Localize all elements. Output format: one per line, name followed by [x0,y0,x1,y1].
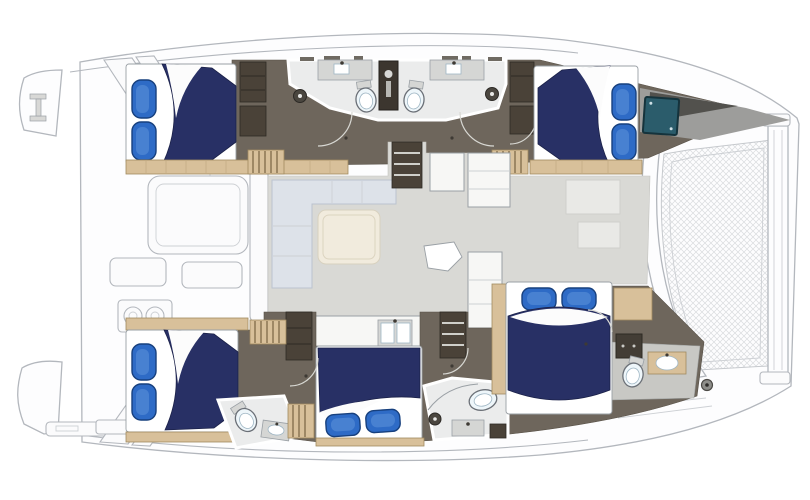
vent-slot [488,57,502,61]
pillow-highlight [136,349,149,375]
pillow-highlight [331,417,356,432]
pillow-highlight [371,413,396,428]
door-stop [304,374,307,377]
shower-head-icon [486,88,499,101]
cabin-shelf [492,284,506,394]
wardrobe [510,106,534,134]
cabinet-body [616,334,642,358]
pillow-highlight [136,85,149,113]
cabin-shelf [126,318,248,330]
port-aft-cabin [126,64,236,164]
bed-pillow [562,288,596,310]
pillow-highlight [567,292,591,305]
bowsprit-beam [768,126,788,374]
faucet [452,61,456,65]
helm-seat-ghost [578,222,620,248]
walkway-planks [126,160,348,174]
bed-pillow [132,80,156,118]
bed-pillow [132,344,156,380]
pillow-highlight [136,127,149,155]
anchor-fitting-pin [705,383,709,387]
pillow-highlight [527,292,551,305]
beam-cap-bottom [760,372,790,384]
cleat-bar-top [30,94,46,99]
sink-basin [656,356,678,370]
vent-slot [442,56,458,60]
wardrobe [286,312,312,360]
sink-basin [446,64,461,74]
sink-icon [648,352,686,374]
cabinet [616,334,642,358]
pillow-highlight [136,389,149,415]
wardrobe-body [286,312,312,360]
wardrobe [240,106,266,136]
step-treads [288,404,314,438]
bed-pillow [132,384,156,420]
sink-icon [261,420,291,441]
hull-steps [250,320,286,344]
vent-slot [300,57,314,61]
sink-basin [381,323,394,343]
bed-pillow [132,122,156,160]
vent-slot [354,56,363,60]
shower-rose-center [433,417,437,421]
bathroom-locker [490,424,506,438]
anchor-fitting [702,380,713,391]
cabinet-knob [633,345,636,348]
cockpit-table [148,176,248,254]
cabin-shelf [614,288,652,320]
door-stop [584,342,587,345]
bed-pillow [522,288,556,310]
faucet [340,61,344,65]
seat-hatch-lid [643,97,679,135]
cleat-post [36,99,41,116]
door-stop [450,136,453,139]
mixer-bar-icon [386,81,391,97]
coffee-table [318,210,380,264]
pillow-highlight [616,129,629,155]
galley [308,316,438,350]
shower-rose-center [490,92,494,96]
sink-basin [334,64,349,74]
faucet [665,353,668,356]
sink-basin [397,323,410,343]
walkway-planks [530,160,642,174]
mixer-icon [385,70,393,78]
faucet [466,422,470,426]
hull-steps [248,150,284,174]
vent-slot [462,56,471,60]
faucet [393,319,397,323]
door-stop [450,364,453,367]
port-forward-cabin [534,66,638,166]
floor-plan-canvas [0,0,810,500]
companionway-stairs-starboard [440,312,466,358]
bed-pillow [325,413,360,437]
chart-table-ghost [566,180,620,214]
forward-seat-hatch [643,97,679,135]
hull-steps [288,404,314,438]
cabin-walkway [316,438,424,446]
shower-rose-center [298,94,302,98]
door-stop [344,136,347,139]
cockpit-bench-forward [250,150,268,322]
pillow-highlight [616,89,629,115]
bed-pillow [365,409,400,433]
companionway-stairs-port [392,142,422,188]
yacht-floor-plan [0,0,810,500]
wardrobe [240,62,266,102]
galley-counter [308,316,438,350]
bed-pillow [612,84,636,120]
bed-pillow [612,124,636,160]
refrigerator-counter [468,153,510,207]
cabinet-knob [622,345,625,348]
shower-head-icon [294,90,307,103]
shower-head-icon [429,413,441,425]
cabin-walkway [126,432,236,442]
wet-locker [379,61,398,110]
starboard-mid-cabin [316,346,424,446]
vent-slot [324,56,340,60]
cockpit-seat [182,262,242,288]
wardrobe [510,62,534,102]
cockpit-bench-aft [110,258,166,286]
cleat-bar-bottom [30,116,46,121]
salon-cabinet [430,153,464,191]
